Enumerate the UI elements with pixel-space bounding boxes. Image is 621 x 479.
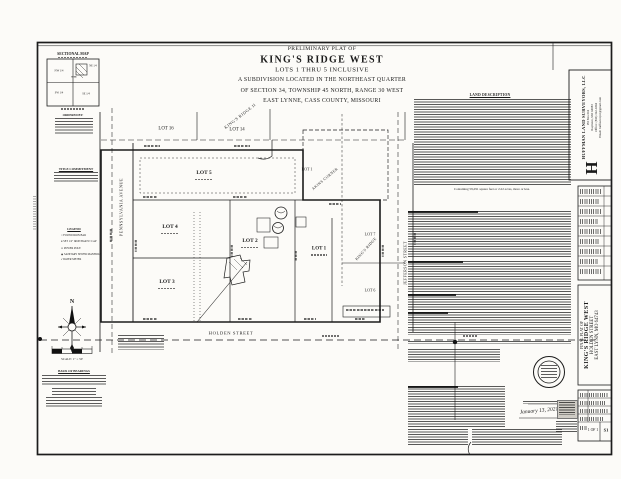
containing-area-line: Containing 59,291 square feet or 2.22 ac… bbox=[454, 187, 530, 191]
plat-subtitle-location: A SUBDIVISION LOCATED IN THE NORTHEAST Q… bbox=[238, 77, 406, 83]
certification-heading-illegible bbox=[408, 386, 458, 388]
lot-1-label: LOT 1 bbox=[312, 247, 326, 252]
panel-project-title-block: FINAL PLAT OF KING'S RIDGE WEST HOLDEN S… bbox=[579, 288, 611, 382]
revision-row-illegible bbox=[580, 209, 602, 214]
footer-left-text-illegible bbox=[408, 429, 468, 446]
point-of-beginning-note-illegible bbox=[346, 309, 384, 311]
sectional-map-title: SECTIONAL MAP bbox=[57, 52, 89, 56]
sewer-manhole-icon: ◉ bbox=[61, 253, 63, 256]
lot-3-area-illegible bbox=[158, 288, 176, 290]
revision-row-illegible bbox=[580, 249, 602, 254]
land-description-heading: LAND DESCRIPTION bbox=[470, 93, 511, 97]
plat-title: KING'S RIDGE WEST bbox=[260, 55, 384, 66]
adjacent-lot-14-label: LOT 14 bbox=[229, 128, 244, 133]
company-email: Email: huffsurveyor@gmail.com bbox=[597, 75, 601, 159]
lot-5-label: LOT 5 bbox=[196, 170, 211, 176]
company-city: Raymore, MO 64083 bbox=[589, 75, 593, 159]
company-name: HUFFMAN LAND SURVEYORS, LLC bbox=[580, 75, 585, 159]
akins-corner-lot-1-label: LOT 1 bbox=[302, 167, 313, 172]
legend-heading: LEGEND bbox=[67, 227, 80, 231]
lot-5-area-illegible bbox=[195, 179, 213, 181]
revision-row-illegible bbox=[580, 189, 602, 194]
legend-item: ◉ SANITARY SEWER MANHOLE bbox=[61, 252, 101, 256]
revision-row-illegible bbox=[580, 239, 600, 244]
ordered-by-text-illegible bbox=[55, 118, 93, 135]
dimension-text-illegible bbox=[233, 196, 247, 198]
dimension-text-illegible bbox=[143, 196, 157, 198]
sheet-code: S1 bbox=[604, 428, 609, 433]
company-address: PO Box 661 bbox=[585, 75, 589, 159]
legend-item: ▪ WATER METER bbox=[61, 258, 81, 261]
sheet-label-illegible bbox=[580, 426, 587, 430]
revision-row-illegible bbox=[580, 229, 602, 234]
legend-item-label: SET 1/2" IRON BAR W/ CAP bbox=[63, 240, 96, 243]
footer-right-text-illegible bbox=[472, 429, 562, 446]
below-box-text-illegible bbox=[556, 421, 577, 433]
lot-4-label: LOT 4 bbox=[162, 224, 177, 230]
dimension-text-illegible bbox=[231, 245, 233, 257]
legend-item-label: POWER POLE bbox=[64, 247, 81, 250]
adjacent-lot-16-label: LOT 16 bbox=[158, 127, 173, 132]
revision-note-text-illegible bbox=[559, 402, 575, 415]
dimension-text-illegible bbox=[110, 229, 112, 243]
ordered-by-heading: ORDERED BY: bbox=[63, 113, 84, 117]
dimension-text-illegible bbox=[304, 318, 316, 320]
revision-row-illegible bbox=[580, 199, 600, 204]
legend-item-label: SANITARY SEWER MANHOLE bbox=[64, 253, 101, 256]
panel-final-plat-of: FINAL PLAT OF bbox=[579, 288, 584, 382]
dimension-text-illegible bbox=[238, 318, 252, 320]
titleblock-row-illegible bbox=[580, 409, 608, 414]
sw-corner-note-illegible bbox=[118, 335, 164, 350]
street-jefferson-street-label: JEFFERSON STREET bbox=[403, 241, 408, 285]
owner-signature-lines-illegible bbox=[408, 349, 500, 362]
surveyor-certification-illegible bbox=[408, 386, 505, 428]
restriction-heading-illegible bbox=[408, 294, 456, 296]
panel-project-name: KING'S RIDGE WEST bbox=[584, 288, 590, 382]
dimension-text-illegible bbox=[144, 145, 160, 147]
street-holden-street-label: HOLDEN STREET bbox=[209, 331, 254, 336]
title-commitment-text-illegible bbox=[54, 172, 98, 183]
sheet-number: 1 OF 1 bbox=[588, 428, 599, 432]
scan-edge-artifact bbox=[33, 196, 36, 230]
holden-dimension2-illegible bbox=[463, 335, 477, 337]
easement-text-illegible bbox=[408, 261, 571, 292]
legend-item-label: FOUND IRON BAR bbox=[63, 234, 86, 237]
plat-subtitle-city: EAST LYNNE, CASS COUNTY, MISSOURI bbox=[263, 98, 381, 104]
kings-ridge-lot-6-label: LOT 6 bbox=[365, 288, 376, 293]
dimension-text-illegible bbox=[355, 318, 365, 320]
dimension-text-illegible bbox=[382, 245, 384, 257]
dimension-text-illegible bbox=[329, 203, 341, 205]
dimension-text-illegible bbox=[143, 318, 157, 320]
surveyor-seal-text-illegible bbox=[541, 365, 557, 379]
sectional-site-label: SITE bbox=[71, 76, 77, 79]
revision-row-illegible bbox=[580, 219, 598, 224]
notes-text-illegible bbox=[408, 312, 571, 325]
sectional-scale-note-illegible bbox=[61, 108, 85, 110]
sectional-nw-label: NW 1/4 bbox=[55, 70, 64, 73]
basis-of-bearings-text-illegible bbox=[42, 375, 106, 386]
north-arrow-label: N bbox=[70, 299, 74, 305]
lot-3-label: LOT 3 bbox=[159, 279, 174, 285]
holden-dimension-illegible bbox=[322, 335, 340, 337]
surveyor-company-block: H HUFFMAN LAND SURVEYORS, LLC PO Box 661… bbox=[572, 73, 610, 177]
power-pole-icon: ⊙ bbox=[61, 247, 63, 250]
legend-item: ⊙ POWER POLE bbox=[61, 246, 81, 250]
legend-item: ○ FOUND IRON BAR bbox=[61, 234, 86, 237]
scale-bar-label: SCALE: 1" = 50' bbox=[61, 357, 83, 361]
land-description-text-illegible bbox=[414, 99, 571, 185]
street-pennsylvania-avenue-label: PENNSYLVANIA AVENUE bbox=[119, 178, 124, 236]
panel-project-city: EAST LYNN, MO 64743 bbox=[595, 288, 600, 382]
dedication-heading-illegible bbox=[408, 211, 478, 213]
lot-2-area-illegible bbox=[241, 247, 259, 249]
restriction-text-illegible bbox=[408, 294, 571, 310]
basis-note2-illegible bbox=[46, 397, 102, 407]
legend-item-label: WATER METER bbox=[63, 258, 82, 261]
plat-subtitle-section: OF SECTION 34, TOWNSHIP 45 NORTH, RANGE … bbox=[241, 88, 404, 94]
title-commitment-heading: TITLE COMMITMENT bbox=[59, 167, 93, 171]
huffman-logo-letter: H bbox=[582, 161, 599, 174]
panel-project-street: HOLDEN STREET bbox=[590, 288, 595, 382]
lot-1-area-illegible bbox=[311, 254, 327, 256]
lot-4-area-illegible bbox=[161, 233, 179, 235]
plat-document-scan: PRELIMINARY PLAT OF KING'S RIDGE WEST LO… bbox=[0, 0, 621, 479]
sectional-se-label: SE 1/4 bbox=[82, 93, 90, 96]
dimension-text-illegible bbox=[234, 145, 250, 147]
basis-of-bearings-heading: BASIS OF BEARINGS bbox=[58, 369, 90, 373]
basis-note-illegible bbox=[52, 388, 96, 395]
lot-2-label: LOT 2 bbox=[242, 238, 257, 244]
revision-row-illegible bbox=[580, 269, 602, 274]
approval-line-illegible bbox=[408, 341, 571, 344]
sectional-sw-label: SW 1/4 bbox=[55, 92, 63, 95]
dedication-text-illegible bbox=[408, 211, 571, 258]
titleblock-row-illegible bbox=[580, 393, 608, 398]
approval-text-illegible bbox=[408, 327, 571, 335]
notes-heading-illegible bbox=[408, 312, 448, 314]
legend-item: ● SET 1/2" IRON BAR W/ CAP bbox=[61, 240, 96, 243]
sectional-map-subtitle-illegible bbox=[58, 57, 88, 59]
dimension-text-illegible bbox=[135, 240, 137, 252]
revision-row-illegible bbox=[580, 259, 598, 264]
titleblock-row-illegible bbox=[580, 401, 606, 406]
plat-pre-title: PRELIMINARY PLAT OF bbox=[288, 46, 357, 52]
easement-heading-illegible bbox=[408, 261, 463, 263]
dimension-text-illegible bbox=[295, 251, 297, 261]
titleblock-row-illegible bbox=[580, 417, 604, 422]
company-phone: Office: (816) 322-4344 bbox=[593, 75, 597, 159]
plat-subtitle-lots: LOTS 1 THRU 5 INCLUSIVE bbox=[275, 67, 369, 74]
sectional-ne-label: NE 1/4 bbox=[89, 65, 96, 68]
